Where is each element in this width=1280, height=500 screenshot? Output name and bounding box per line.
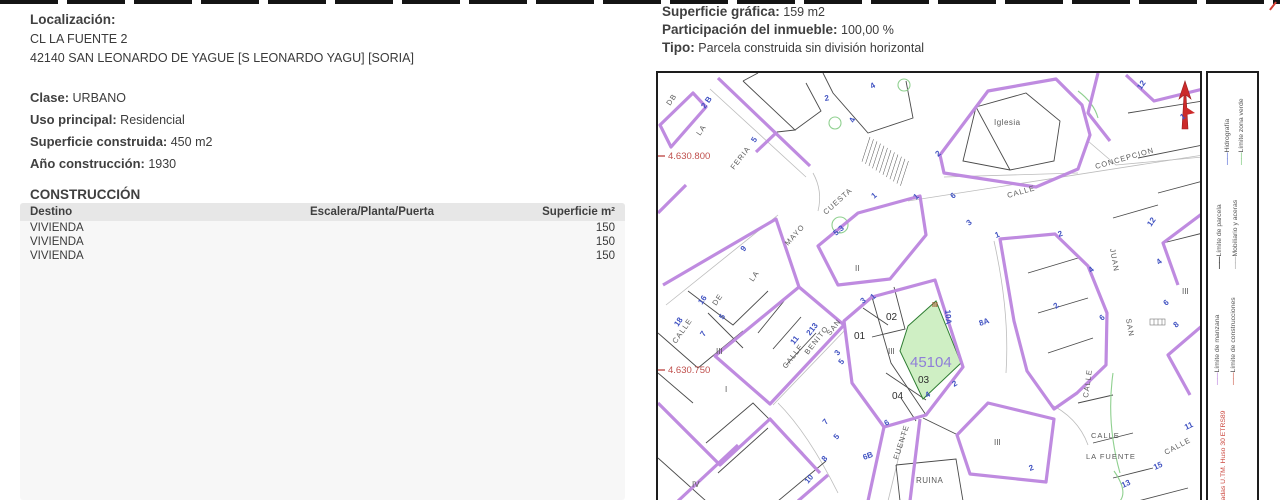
legend-item: —— Límite zona verde — [1238, 98, 1245, 165]
legend-label: Límite zona verde — [1238, 98, 1245, 152]
map-label: I — [725, 385, 727, 394]
anio-row: Año construcción: 1930 — [30, 156, 640, 171]
legend-item: —— Límite de construcciones — [1230, 297, 1237, 385]
clase-value: URBANO — [73, 91, 126, 105]
table-row: VIVIENDA150 — [20, 235, 625, 249]
map-label: IV — [692, 480, 700, 489]
map-label: 02 — [886, 312, 898, 323]
map-label: 2 — [1028, 463, 1036, 473]
legend-item: —— Límite de manzana — [1214, 315, 1221, 385]
map-label: 01 — [854, 331, 866, 342]
table-cell: 150 — [510, 236, 615, 248]
participacion-row: Participación del inmueble: 100,00 % — [662, 22, 1222, 37]
map-label: 03 — [918, 375, 930, 386]
cadastral-map-svg: DBLAFERIACALLEDELAMAYOCUESTACALLECONCEPC… — [658, 73, 1202, 500]
col-superficie: Superficie m² — [510, 206, 615, 218]
tipo-value: Parcela construida sin división horizont… — [698, 41, 924, 55]
map-label: 16 — [696, 293, 709, 306]
table-cell: 150 — [510, 250, 615, 262]
map-label: JUAN — [1108, 248, 1121, 273]
participacion-value: 100,00 % — [841, 23, 894, 37]
superficie-grafica-label: Superficie gráfica: — [662, 4, 780, 19]
parcel-ref-label: 45104 — [910, 354, 952, 371]
legend-item: —— Mobiliario y aceras — [1232, 200, 1239, 269]
map-label: 1 — [994, 230, 1002, 240]
table-cell: VIVIENDA — [30, 222, 310, 234]
map-label: 11 — [1183, 420, 1195, 432]
construccion-table: Destino Escalera/Planta/Puerta Superfici… — [20, 203, 625, 500]
legend-swatch: —— — [1230, 373, 1237, 385]
green-zone-lines — [829, 79, 1123, 500]
map-label: 7 — [821, 417, 831, 427]
map-label: 12 — [1135, 78, 1148, 91]
map-label: 12 — [1145, 215, 1158, 228]
map-legend: —— Hidrografía—— Límite zona verde—— Lím… — [1206, 71, 1259, 500]
map-label: 2 — [824, 93, 830, 103]
map-label: 1 — [870, 190, 880, 200]
legend-swatch: —— — [1224, 153, 1231, 165]
address-line-2: 42140 SAN LEONARDO DE YAGUE [S LEONARDO … — [30, 51, 640, 65]
construccion-table-body: VIVIENDA150VIVIENDA150VIVIENDA150 — [20, 221, 625, 263]
map-label: 8 — [1172, 319, 1182, 329]
map-label: DB — [664, 92, 678, 107]
map-label: 4 — [1155, 256, 1165, 266]
map-label: RUINA — [916, 476, 944, 485]
address-line-1: CL LA FUENTE 2 — [30, 32, 640, 46]
table-cell — [310, 250, 510, 262]
map-label: 10 — [803, 472, 816, 485]
legend-item: —— Límite de parcela — [1216, 204, 1223, 269]
legend-label: Coordenadas U.TM. Huso 30 ETRS89 — [1220, 411, 1227, 500]
tipo-row: Tipo: Parcela construida sin división ho… — [662, 40, 1222, 55]
map-label: CUESTA — [821, 186, 854, 217]
map-label: Iglesia — [994, 118, 1021, 127]
map-label: 6B — [862, 450, 875, 462]
map-label: 15 — [1152, 460, 1164, 472]
map-label: II — [855, 264, 859, 273]
map-label: 4 — [847, 116, 857, 124]
col-destino: Destino — [30, 206, 310, 218]
legend-label: Límite de construcciones — [1230, 297, 1237, 372]
clase-row: Clase: URBANO — [30, 90, 640, 105]
map-label: III — [1182, 287, 1189, 296]
map-label: 5 — [836, 357, 846, 366]
legend-label: Hidrografía — [1224, 119, 1231, 153]
table-cell — [310, 222, 510, 234]
map-label: FERIA — [728, 144, 752, 171]
map-label: 2 — [951, 378, 960, 388]
map-label: 5 — [832, 432, 842, 442]
map-label: CALLE — [1091, 431, 1120, 440]
map-label: 8A — [978, 316, 991, 328]
map-label: 3 — [832, 348, 842, 357]
map-label: LA — [747, 269, 761, 283]
map-label: III — [932, 302, 938, 309]
map-label: 4 — [869, 80, 878, 90]
map-label: III — [888, 347, 895, 356]
superficie-row: Superficie construida: 450 m2 — [30, 134, 640, 149]
legend-item: —— Hidrografía — [1224, 119, 1231, 165]
map-label: SAN — [1124, 318, 1136, 338]
table-row: VIVIENDA150 — [20, 221, 625, 235]
construction-lines — [658, 73, 1202, 500]
map-label: 2 — [1052, 300, 1062, 310]
parcel-summary-panel: Superficie gráfica: 159 m2 Participación… — [662, 4, 1222, 58]
map-label: 2 B — [699, 95, 714, 111]
table-row: VIVIENDA150 — [20, 249, 625, 263]
legend-swatch: —— — [1216, 257, 1223, 269]
stairs-hatch — [859, 137, 912, 186]
map-label: III — [994, 438, 1001, 447]
uso-value: Residencial — [120, 113, 185, 127]
map-label: CALLE — [1081, 369, 1094, 399]
legend-swatch: —— — [1214, 373, 1221, 385]
utm-coordinate-label: 4.630.800 — [668, 151, 710, 162]
construccion-title: CONSTRUCCIÓN — [30, 187, 640, 202]
map-label: MAYO — [783, 222, 807, 247]
legend-label: Mobiliario y aceras — [1232, 200, 1239, 257]
map-label: LA — [694, 123, 708, 137]
tipo-label: Tipo: — [662, 40, 695, 55]
legend-label: Límite de manzana — [1214, 315, 1221, 373]
anio-label: Año construcción: — [30, 156, 145, 171]
legend-swatch: —— — [1232, 257, 1239, 269]
map-label: FUENTE — [891, 424, 911, 461]
utm-coordinate-label: 4.630.750 — [668, 365, 710, 376]
map-label: 6 — [1162, 297, 1172, 307]
north-arrow-icon — [1179, 81, 1195, 129]
superficie-value: 450 m2 — [171, 135, 213, 149]
uso-row: Uso principal: Residencial — [30, 112, 640, 127]
table-cell: VIVIENDA — [30, 250, 310, 262]
map-label: III — [716, 347, 723, 356]
construccion-table-header: Destino Escalera/Planta/Puerta Superfici… — [20, 203, 625, 221]
map-label: LA FUENTE — [1086, 452, 1136, 461]
map-labels: DBLAFERIACALLEDELAMAYOCUESTACALLECONCEPC… — [664, 78, 1195, 490]
map-label: 04 — [892, 391, 904, 402]
map-label: 4 — [1087, 264, 1097, 274]
table-cell — [310, 236, 510, 248]
map-label: 9 — [739, 244, 749, 254]
legend-item: —— Coordenadas U.TM. Huso 30 ETRS89 — [1220, 411, 1227, 500]
legend-label: Límite de parcela — [1216, 204, 1223, 256]
map-label: 6 — [949, 190, 959, 200]
map-label: 10A — [943, 309, 953, 325]
map-label: DE — [710, 292, 724, 307]
clase-label: Clase: — [30, 90, 69, 105]
superficie-grafica-row: Superficie gráfica: 159 m2 — [662, 4, 1222, 19]
map-label: CALLE — [780, 342, 805, 370]
localizacion-label: Localización: — [30, 12, 640, 27]
col-escalera: Escalera/Planta/Puerta — [310, 206, 510, 218]
map-label: 5 — [749, 135, 759, 144]
superficie-label: Superficie construida: — [30, 134, 167, 149]
property-detail-panel: Localización: CL LA FUENTE 2 42140 SAN L… — [30, 12, 640, 202]
table-cell: VIVIENDA — [30, 236, 310, 248]
furniture-hatch — [1150, 319, 1165, 325]
table-cell: 150 — [510, 222, 615, 234]
map-label: 7 — [698, 329, 708, 338]
superficie-grafica-value: 159 m2 — [783, 5, 825, 19]
map-label: 3 — [965, 217, 975, 227]
uso-label: Uso principal: — [30, 112, 117, 127]
anio-value: 1930 — [148, 157, 176, 171]
participacion-label: Participación del inmueble: — [662, 22, 838, 37]
map-label: CALLE — [1163, 435, 1193, 456]
legend-swatch: —— — [1238, 153, 1245, 165]
cadastral-map[interactable]: DBLAFERIACALLEDELAMAYOCUESTACALLECONCEPC… — [656, 71, 1202, 500]
